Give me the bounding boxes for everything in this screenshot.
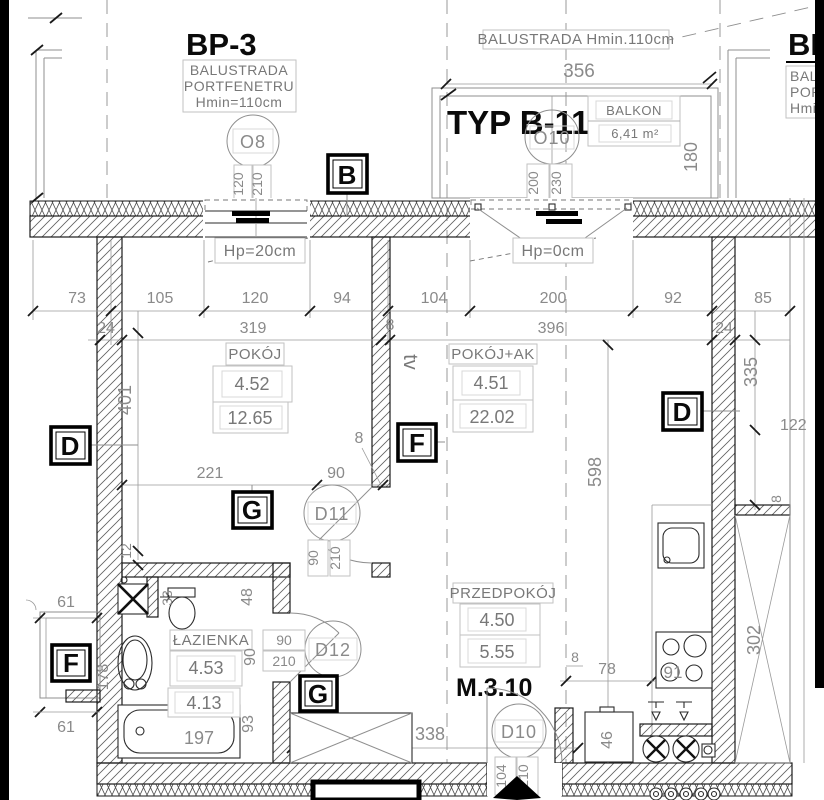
- door-d12: D12 90 210: [263, 613, 361, 682]
- dim-12: 12: [118, 543, 134, 559]
- dim-8c: 8: [571, 649, 579, 665]
- marker-b-label: B: [338, 160, 357, 190]
- right-wall: [712, 237, 735, 763]
- d11-id: D11: [315, 504, 350, 524]
- d11-h: 210: [327, 546, 343, 570]
- przedpokoj-label: PRZEDPOKÓJ 4.50 5.55 M.3.10: [450, 583, 557, 702]
- floor-plan: BALUSTRADA Hmin.110cm 356 TYP B-11 BALKO…: [0, 0, 824, 800]
- d10-id: D10: [501, 722, 537, 742]
- radiator: [650, 788, 720, 800]
- dim-61b: 61: [57, 719, 75, 736]
- kitchen: 91 46: [585, 505, 720, 800]
- dim-335: 335: [741, 357, 761, 387]
- dim-105: 105: [147, 290, 174, 307]
- marker-d-left-label: D: [61, 431, 80, 461]
- marker-f-left-label: F: [63, 648, 79, 678]
- tv-label: tv: [399, 354, 421, 370]
- balkon-area: 6,41 m²: [611, 126, 659, 141]
- dim-598: 598: [585, 457, 605, 487]
- pokoj-ak-no: 4.51: [473, 373, 508, 393]
- partition-pokoj: [372, 237, 390, 577]
- dim-200: 200: [540, 290, 567, 307]
- entry-jamb: [555, 708, 573, 763]
- marker-f-left: F: [52, 645, 90, 681]
- pokoj-no: 4.52: [234, 374, 269, 394]
- lazienka-area: 4.13: [186, 693, 221, 713]
- d12-id: D12: [315, 640, 351, 660]
- washing-machine: [118, 577, 148, 614]
- door-d10: D10 104 210: [487, 688, 562, 796]
- d12-h: 210: [272, 653, 296, 669]
- dim-401: 401: [115, 385, 135, 415]
- hp0-text: Hp=0cm: [521, 243, 584, 260]
- dim-104: 104: [421, 290, 448, 307]
- marker-f-right-label: F: [409, 428, 425, 458]
- dim-8r: 8: [768, 495, 784, 503]
- dim-93: 93: [240, 715, 257, 733]
- dim-33: 33: [159, 590, 175, 606]
- o10-id: O10: [533, 128, 570, 148]
- kitchen-sink: [658, 523, 704, 568]
- dim-24b: 24: [715, 320, 733, 337]
- pokoj-dims: 221 90 8: [117, 430, 390, 490]
- bp3-line2: PORTFENETRU: [184, 78, 294, 94]
- dim-120: 120: [242, 290, 269, 307]
- przedpokoj-area: 5.55: [479, 642, 514, 662]
- marker-g-top: G: [233, 485, 272, 528]
- dim-46: 46: [599, 731, 616, 749]
- bp3-line3: Hmin=110cm: [196, 94, 283, 110]
- hp20-label: Hp=20cm: [208, 238, 308, 263]
- wardrobe: [290, 713, 412, 763]
- dim-78: 78: [598, 661, 616, 678]
- dim-92: 92: [664, 290, 682, 307]
- shaft-walls: [735, 198, 804, 763]
- pokoj-area: 12.65: [227, 408, 272, 428]
- pokoj-ak-area: 22.02: [469, 407, 514, 427]
- dim-90: 90: [327, 465, 345, 482]
- marker-f-right: F: [398, 424, 445, 461]
- room-pokoj-ak-label: POKÓJ+AK 4.51 22.02: [449, 344, 537, 432]
- gas-valves: [640, 702, 715, 762]
- dim-94: 94: [333, 290, 351, 307]
- dim-338: 338: [415, 724, 445, 744]
- marker-g-bottom-label: G: [308, 679, 328, 709]
- marker-d-right-label: D: [673, 397, 692, 427]
- lazienka-name: ŁAZIENKA: [173, 632, 250, 649]
- fridge: 46: [585, 707, 633, 762]
- left-facade-lines: [28, 13, 82, 203]
- dim-8: 8: [386, 317, 395, 334]
- pokoj-ak-name: POKÓJ+AK: [451, 346, 535, 363]
- dim-122: 122: [780, 417, 807, 434]
- bp-right-block: BP BALU PORT Hmin: [728, 27, 824, 198]
- dim-221: 221: [197, 465, 224, 482]
- dim-24a: 24: [97, 320, 115, 337]
- hp0-label: Hp=0cm: [470, 238, 596, 263]
- exterior-top-wall: [30, 201, 824, 237]
- o8-h: 210: [249, 172, 265, 196]
- o8-w: 120: [230, 172, 246, 196]
- bathroom-sink: [118, 636, 152, 690]
- marker-d-left: D: [51, 427, 138, 464]
- dim-61a: 61: [57, 594, 75, 611]
- lazienka-no: 4.53: [188, 658, 223, 678]
- dim-319: 319: [240, 320, 267, 337]
- bp3-block: BP-3 BALUSTRADA PORTFENETRU Hmin=110cm O…: [183, 27, 296, 202]
- przedpokoj-no: 4.50: [479, 610, 514, 630]
- balustrade-label: BALUSTRADA Hmin.110cm: [478, 30, 675, 49]
- balcony-width-dim: 356: [441, 61, 717, 89]
- dim-85: 85: [754, 290, 772, 307]
- marker-g-top-label: G: [242, 495, 262, 525]
- dim-178: 178: [95, 664, 112, 691]
- przedpokoj-name: PRZEDPOKÓJ: [450, 585, 557, 602]
- dim-180: 180: [681, 142, 701, 172]
- dim-90v: 90: [242, 648, 259, 666]
- dim-396: 396: [538, 320, 565, 337]
- balkon-area-label: BALKON 6,41 m²: [588, 96, 680, 146]
- dim-91: 91: [664, 663, 683, 682]
- room-pokoj-label: POKÓJ 4.52 12.65: [213, 343, 292, 433]
- dim-356: 356: [563, 61, 595, 82]
- floor-plan-page: { "plan": { "apartment_no": "M.3.10", "t…: [0, 0, 824, 800]
- bp3-title: BP-3: [186, 27, 257, 62]
- dim-302: 302: [744, 625, 764, 655]
- o10-w: 200: [525, 171, 541, 195]
- o8-id: O8: [240, 132, 266, 152]
- balustrade-text: BALUSTRADA Hmin.110cm: [478, 31, 675, 48]
- stove: 91: [656, 632, 712, 688]
- balkon-name: BALKON: [606, 103, 662, 118]
- lazienka-label: ŁAZIENKA 4.53 4.13: [168, 630, 252, 717]
- d11-w: 90: [305, 550, 321, 566]
- bp3-line1: BALUSTRADA: [190, 62, 289, 78]
- d12-w: 90: [276, 632, 292, 648]
- pokoj-name: POKÓJ: [228, 346, 281, 363]
- dim-197: 197: [184, 728, 214, 748]
- d10-w: 104: [493, 764, 509, 788]
- window-o8: [203, 198, 310, 239]
- o10-h: 230: [548, 171, 564, 195]
- dim-8b: 8: [355, 430, 364, 447]
- dim-row2: 24 319 8 396 24: [88, 317, 790, 345]
- door-d11: D11 90 210: [304, 485, 372, 576]
- marker-g-bottom: G: [300, 676, 337, 711]
- dim-73: 73: [68, 290, 86, 307]
- hp20-text: Hp=20cm: [224, 243, 296, 260]
- dim-48: 48: [239, 588, 256, 606]
